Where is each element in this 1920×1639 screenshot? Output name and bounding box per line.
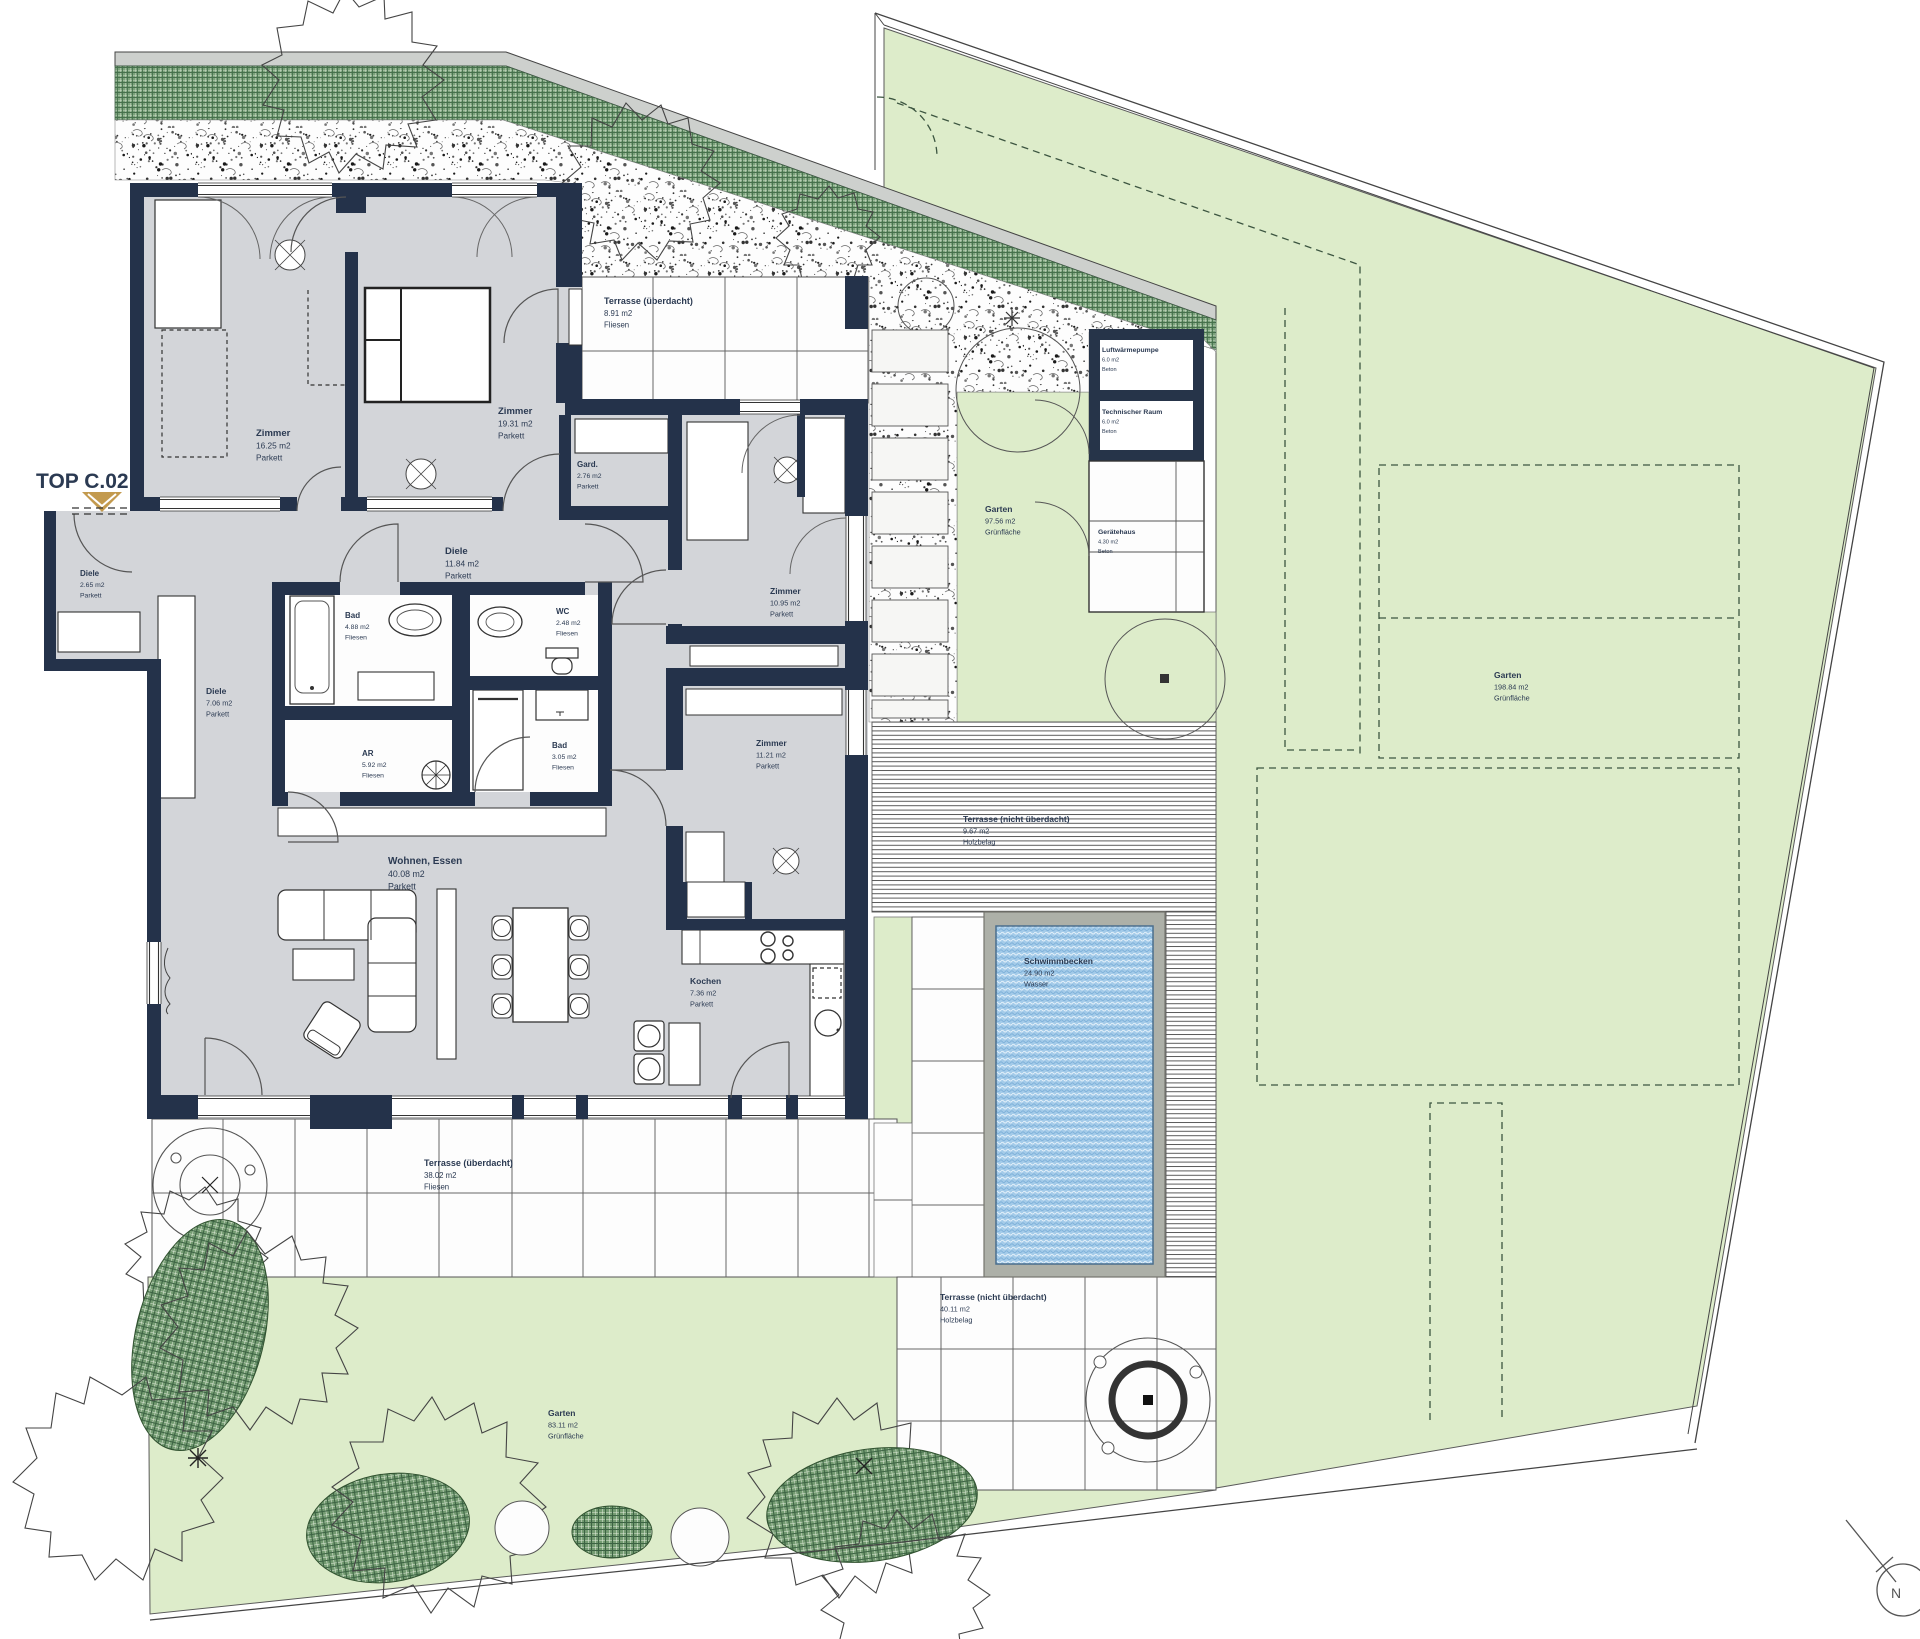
- svg-text:Bad: Bad: [345, 611, 360, 620]
- svg-text:2.65 m2: 2.65 m2: [80, 582, 105, 589]
- svg-text:Parkett: Parkett: [206, 710, 229, 719]
- svg-text:Holzbelag: Holzbelag: [963, 838, 995, 847]
- svg-text:Zimmer: Zimmer: [256, 428, 291, 439]
- svg-text:Terrasse (nicht überdacht): Terrasse (nicht überdacht): [940, 1292, 1047, 1302]
- svg-text:2.48 m2: 2.48 m2: [556, 620, 581, 627]
- svg-text:Beton: Beton: [1098, 549, 1113, 555]
- svg-text:Technischer Raum: Technischer Raum: [1102, 409, 1162, 416]
- svg-text:Gard.: Gard.: [577, 460, 598, 469]
- svg-text:6.0 m2: 6.0 m2: [1102, 358, 1119, 364]
- svg-text:7.06 m2: 7.06 m2: [206, 698, 232, 707]
- svg-text:Grünfläche: Grünfläche: [1494, 694, 1530, 703]
- svg-text:Parkett: Parkett: [388, 882, 416, 892]
- svg-text:Garten: Garten: [1494, 670, 1521, 680]
- svg-text:Zimmer: Zimmer: [756, 738, 787, 748]
- svg-text:Fliesen: Fliesen: [362, 773, 384, 780]
- svg-text:2.76 m2: 2.76 m2: [577, 473, 602, 480]
- svg-text:Zimmer: Zimmer: [498, 406, 533, 417]
- svg-text:Parkett: Parkett: [445, 571, 472, 581]
- svg-text:Parkett: Parkett: [498, 431, 525, 441]
- svg-text:38.02 m2: 38.02 m2: [424, 1171, 457, 1180]
- svg-text:Grünfläche: Grünfläche: [985, 528, 1021, 537]
- svg-text:Parkett: Parkett: [256, 453, 283, 463]
- svg-text:WC: WC: [556, 607, 570, 616]
- svg-text:83.11 m2: 83.11 m2: [548, 1420, 578, 1429]
- svg-text:Wohnen, Essen: Wohnen, Essen: [388, 856, 462, 867]
- svg-text:TOP C.02: TOP C.02: [36, 470, 129, 493]
- svg-text:24.90 m2: 24.90 m2: [1024, 968, 1054, 977]
- svg-text:Luftwärmepumpe: Luftwärmepumpe: [1102, 347, 1159, 354]
- svg-text:Terrasse (überdacht): Terrasse (überdacht): [604, 296, 693, 306]
- svg-text:Beton: Beton: [1102, 429, 1117, 435]
- svg-text:Bad: Bad: [552, 741, 567, 750]
- svg-text:Parkett: Parkett: [80, 593, 102, 600]
- svg-text:Diele: Diele: [80, 569, 100, 578]
- svg-text:Parkett: Parkett: [577, 484, 599, 491]
- svg-text:Fliesen: Fliesen: [424, 1183, 449, 1192]
- svg-text:Fliesen: Fliesen: [552, 765, 574, 772]
- svg-text:Terrasse (nicht überdacht): Terrasse (nicht überdacht): [963, 814, 1070, 824]
- svg-text:Fliesen: Fliesen: [345, 635, 367, 642]
- svg-text:40.11 m2: 40.11 m2: [940, 1304, 970, 1313]
- svg-text:8.91 m2: 8.91 m2: [604, 309, 632, 318]
- svg-text:97.56 m2: 97.56 m2: [985, 516, 1015, 525]
- svg-text:9.67 m2: 9.67 m2: [963, 826, 989, 835]
- svg-text:Gerätehaus: Gerätehaus: [1098, 529, 1136, 536]
- svg-text:Parkett: Parkett: [756, 762, 779, 771]
- svg-text:N: N: [1891, 1585, 1901, 1601]
- svg-text:Terrasse (überdacht): Terrasse (überdacht): [424, 1158, 513, 1168]
- svg-text:4.88 m2: 4.88 m2: [345, 624, 370, 631]
- svg-text:Wasser: Wasser: [1024, 980, 1049, 989]
- svg-text:3.05 m2: 3.05 m2: [552, 754, 577, 761]
- svg-text:Zimmer: Zimmer: [770, 586, 801, 596]
- svg-text:40.08 m2: 40.08 m2: [388, 869, 425, 879]
- svg-text:10.95 m2: 10.95 m2: [770, 598, 800, 607]
- svg-text:Fliesen: Fliesen: [604, 321, 629, 330]
- svg-text:16.25 m2: 16.25 m2: [256, 440, 291, 450]
- svg-text:Grünfläche: Grünfläche: [548, 1432, 584, 1441]
- svg-text:Diele: Diele: [445, 546, 468, 557]
- svg-text:5.92 m2: 5.92 m2: [362, 762, 387, 769]
- svg-text:AR: AR: [362, 749, 374, 758]
- svg-text:7.36 m2: 7.36 m2: [690, 988, 716, 997]
- svg-text:19.31 m2: 19.31 m2: [498, 418, 533, 428]
- svg-text:Parkett: Parkett: [690, 1000, 713, 1009]
- svg-text:Holzbelag: Holzbelag: [940, 1316, 972, 1325]
- svg-text:6.0 m2: 6.0 m2: [1102, 420, 1119, 426]
- svg-text:Schwimmbecken: Schwimmbecken: [1024, 956, 1093, 966]
- svg-text:Beton: Beton: [1102, 367, 1117, 373]
- svg-text:Parkett: Parkett: [770, 610, 793, 619]
- svg-text:11.21 m2: 11.21 m2: [756, 750, 786, 759]
- svg-text:Kochen: Kochen: [690, 976, 721, 986]
- svg-text:Garten: Garten: [548, 1408, 575, 1418]
- svg-text:4.30 m2: 4.30 m2: [1098, 540, 1118, 546]
- svg-text:198.84 m2: 198.84 m2: [1494, 682, 1528, 691]
- svg-text:Fliesen: Fliesen: [556, 631, 578, 638]
- svg-text:Garten: Garten: [985, 504, 1012, 514]
- svg-text:11.84 m2: 11.84 m2: [445, 558, 479, 568]
- svg-text:Diele: Diele: [206, 686, 227, 696]
